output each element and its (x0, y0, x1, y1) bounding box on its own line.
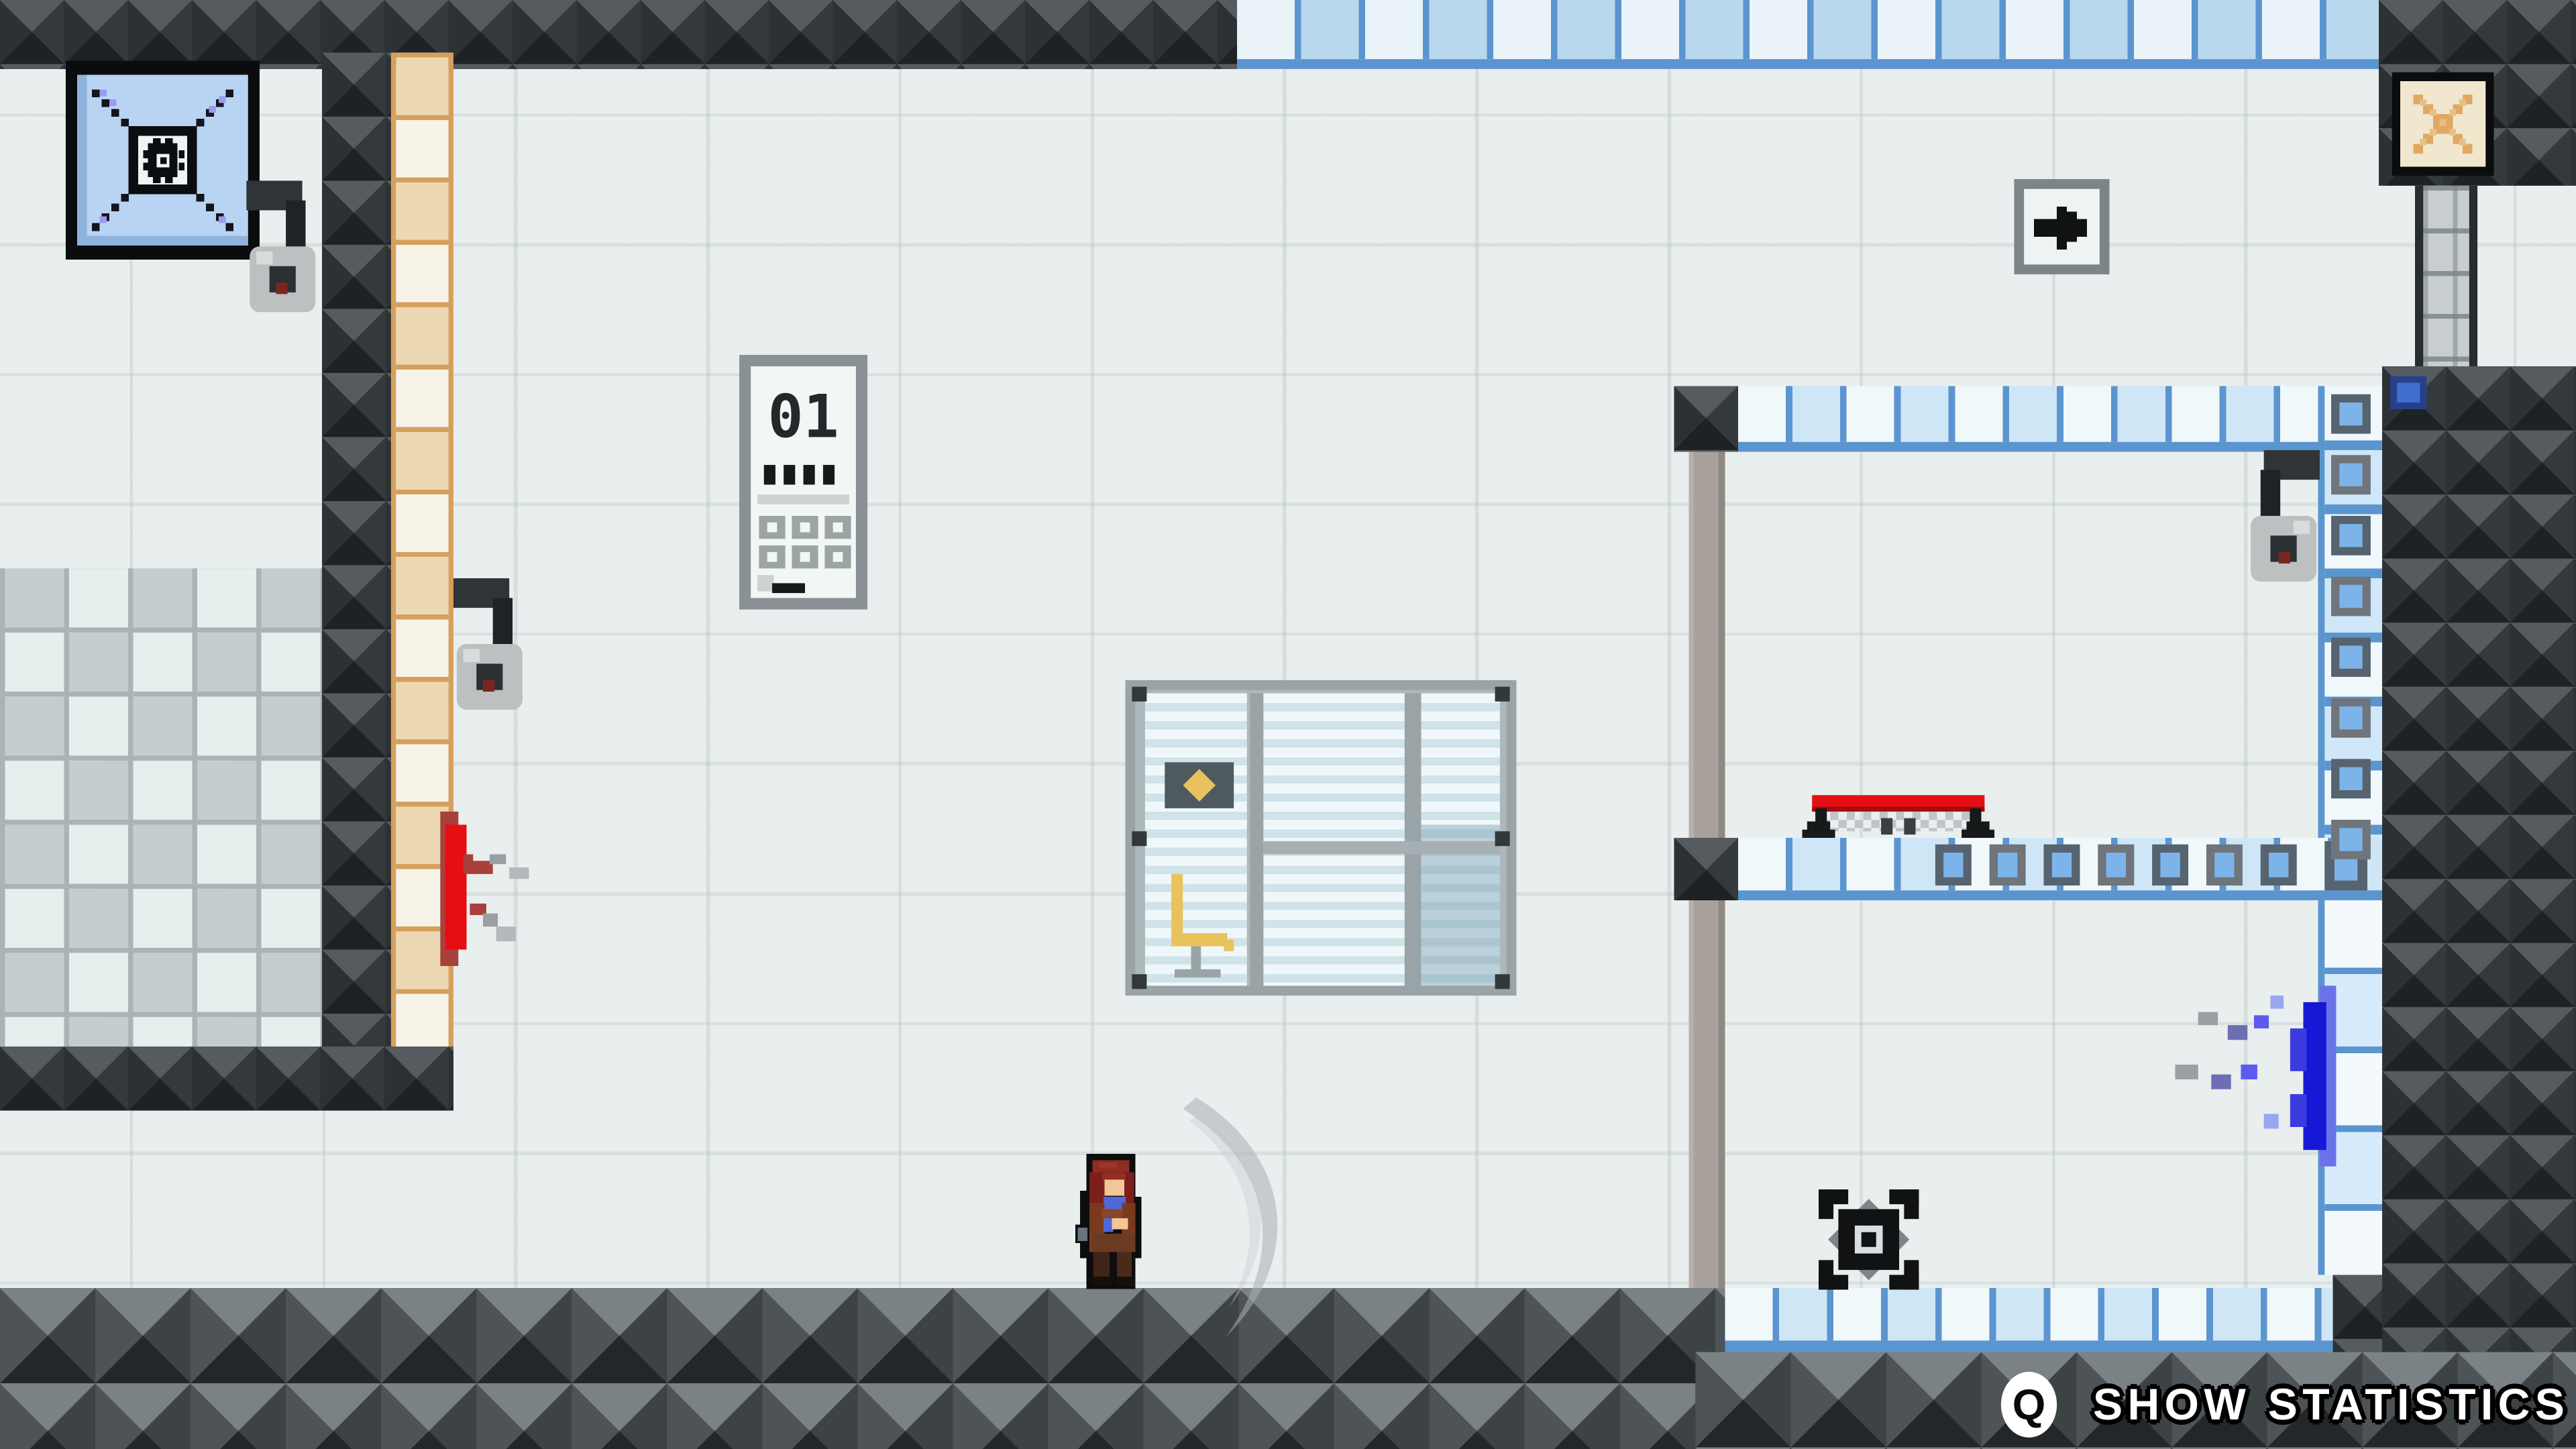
left-wall-column (322, 52, 391, 1110)
blood-splatter-red (431, 812, 578, 976)
platform-emblem-tile (2206, 845, 2243, 885)
panel-tick (784, 465, 795, 484)
slash-effect (1150, 1097, 1330, 1338)
wall-emblem-tile (2331, 698, 2371, 738)
upper-platform (1738, 386, 2318, 452)
platform-anchor-block-upper (1674, 386, 1739, 452)
camera-highlight (464, 649, 480, 662)
right-arrow-icon (2024, 189, 2100, 265)
bench-mesh (1822, 812, 1975, 831)
floor-number: 01 (751, 389, 856, 448)
camera-arm (493, 598, 513, 647)
panel-corner-chip (757, 575, 773, 591)
platform-emblem-tile (2152, 845, 2188, 885)
panel-keys (759, 516, 851, 568)
panel-key (824, 545, 851, 568)
platform-emblem-tile (2261, 845, 2297, 885)
window-pane-middle (1263, 693, 1405, 985)
device-core (1862, 1232, 1876, 1247)
camera-highlight (2294, 521, 2310, 534)
panel-ticks (764, 465, 856, 484)
platform-emblem-tile (2098, 845, 2134, 885)
panel-key (792, 545, 818, 568)
panel-tick (823, 465, 835, 484)
office-window (1126, 680, 1517, 996)
ceiling-tile-band (1237, 0, 2379, 69)
wall-emblem-tile (2331, 394, 2371, 434)
q-key-icon[interactable]: Q (2001, 1372, 2057, 1438)
camera-led (483, 680, 494, 692)
camera-arm (286, 201, 305, 250)
red-bench (1803, 795, 1995, 838)
panel-key (792, 516, 818, 539)
window-rail (1263, 841, 1500, 855)
hud-action-label: SHOW STATISTICS (2093, 1379, 2569, 1430)
panel-key (759, 516, 785, 539)
player-character (1068, 1153, 1160, 1289)
wall-emblem-tile (2331, 455, 2371, 494)
panel-key (824, 516, 851, 539)
direction-sign (2014, 179, 2109, 274)
exit-tile (2392, 72, 2494, 176)
window-bolt (1495, 687, 1510, 702)
elevator-panel: 01 (739, 355, 867, 610)
panel-tick (764, 465, 775, 484)
wall-picture (1165, 762, 1234, 808)
checker-floor-room (0, 568, 322, 1046)
wall-emblem-tile (2331, 577, 2371, 616)
wall-emblem-tile (2331, 759, 2371, 798)
window-mullion (1405, 693, 1421, 985)
camera-led (276, 282, 287, 294)
panel-bar (757, 494, 849, 504)
vent-tile (66, 61, 260, 260)
wall-emblem-tile (2331, 820, 2371, 859)
bench-strut (1904, 818, 1915, 835)
window-bolt (1495, 974, 1510, 989)
security-camera-icon (246, 174, 328, 325)
bench-foot (1962, 830, 1994, 838)
security-camera-icon (453, 572, 535, 722)
wall-emblem-navy (2390, 376, 2426, 409)
platform-anchor-block-mid (1674, 838, 1739, 900)
platform-emblem-tile (2044, 845, 2080, 885)
window-bolt (1495, 831, 1510, 846)
security-camera-icon (2238, 443, 2320, 594)
x-cross-icon (2400, 80, 2485, 168)
panel-key (759, 545, 785, 568)
picture-emblem (1183, 769, 1216, 801)
wall-emblem-tile (2331, 516, 2371, 555)
right-wall-block (2382, 366, 2576, 1449)
blood-splatter-blue (2162, 979, 2337, 1177)
camera-highlight (256, 252, 272, 265)
camera-arm (2261, 470, 2280, 519)
level-stage: 01 (0, 0, 2576, 1449)
panel-dash (772, 583, 805, 593)
office-chair (1165, 874, 1237, 983)
platform-emblem-tile (1935, 845, 1972, 885)
game-viewport[interactable]: 01 (0, 0, 2576, 1449)
bottom-platform (1725, 1288, 2332, 1352)
bench-foot (1803, 830, 1835, 838)
window-bolt (1132, 687, 1146, 702)
bench-top (1812, 795, 1984, 811)
bench-strut (1881, 818, 1892, 835)
platform-emblem-tile (1990, 845, 2026, 885)
window-bolt (1132, 831, 1146, 846)
gear-vent-icon (77, 72, 248, 248)
window-mullion (1250, 693, 1264, 985)
wall-emblem-tile (2331, 637, 2371, 677)
left-block-bottom (0, 1046, 453, 1111)
hud-statistics-prompt[interactable]: Q SHOW STATISTICS (2001, 1367, 2569, 1443)
exit-sign-post (2415, 186, 2477, 366)
camera-led (2279, 552, 2290, 563)
turret-base-device (1819, 1189, 1919, 1289)
window-bolt (1132, 974, 1146, 989)
panel-tick (804, 465, 815, 484)
ceiling-block-left (0, 0, 1237, 69)
floor-left (0, 1288, 1725, 1449)
